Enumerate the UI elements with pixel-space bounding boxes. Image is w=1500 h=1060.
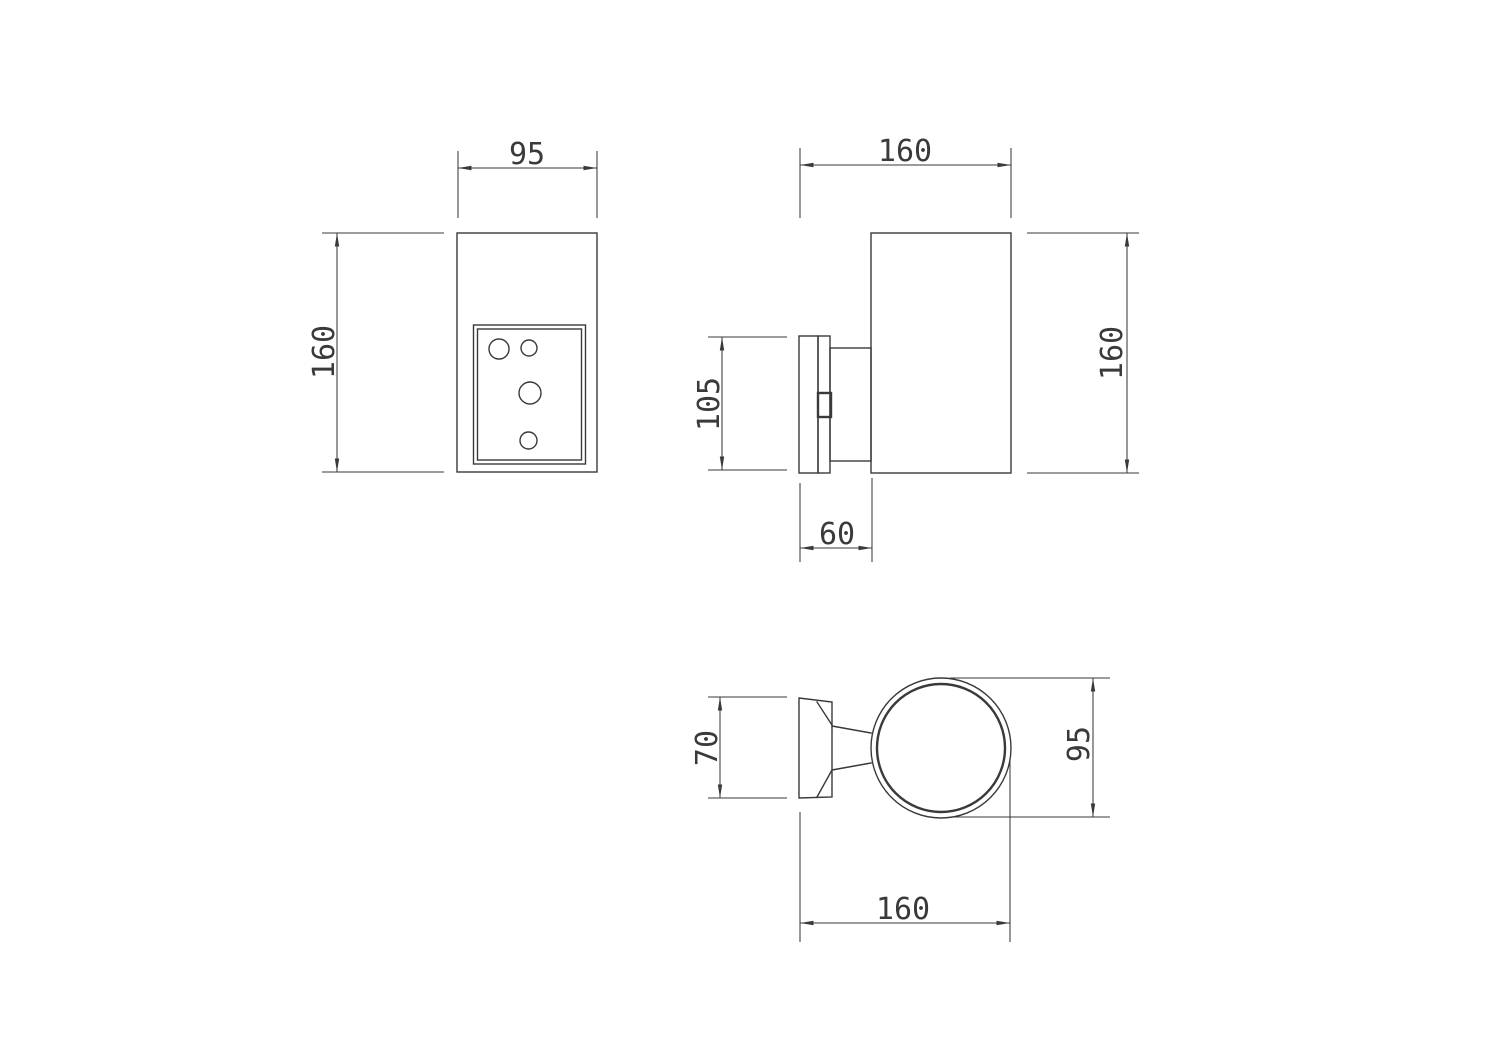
side-backplate: [799, 336, 818, 473]
top-body-inner-ring: [877, 684, 1005, 812]
side-view: 160 160 105 60: [692, 134, 1139, 562]
front-width-dimension: 95: [458, 137, 597, 218]
side-height-dimension: 160: [1027, 233, 1139, 473]
side-screw-detail: [818, 393, 831, 417]
top-diameter-dimension: 95: [950, 678, 1110, 817]
front-plate-inner: [478, 329, 582, 460]
front-plate-hole-small-top: [521, 340, 537, 356]
dim-label-top-backplate-width: 70: [690, 730, 725, 766]
top-arm-edge-bottom: [832, 763, 871, 770]
top-backplate-outline: [799, 698, 832, 798]
side-body-outline: [871, 233, 1011, 473]
dim-label-backplate-height: 105: [692, 377, 727, 431]
side-backplate-height-dimension: 105: [692, 337, 787, 470]
top-backplate-bevel-top: [817, 702, 832, 725]
front-plate-outer: [474, 325, 586, 464]
top-view: 70 95 160: [690, 678, 1110, 942]
top-body-outer-circle: [871, 678, 1011, 818]
front-plate-hole-middle: [519, 382, 541, 404]
front-plate-hole-bottom: [520, 432, 537, 449]
dim-label-mount-depth: 60: [819, 517, 855, 552]
drawing-canvas: 95 160: [0, 0, 1500, 1060]
side-mount-depth-dimension: 60: [800, 478, 872, 562]
dim-label-top-depth: 160: [876, 892, 930, 927]
front-view: 95 160: [307, 137, 597, 472]
dim-label-side-height: 160: [1095, 326, 1130, 380]
technical-drawing: 95 160: [0, 0, 1500, 1060]
dim-label-front-height: 160: [307, 325, 342, 379]
side-mount-bracket: [830, 348, 871, 461]
dim-label-side-width: 160: [878, 134, 932, 169]
side-backplate-spacer: [818, 336, 830, 473]
front-plate-hole-large: [489, 339, 509, 359]
side-width-dimension: 160: [800, 134, 1011, 218]
top-backplate-bevel-bottom: [817, 770, 832, 797]
top-arm-edge-top: [832, 726, 871, 733]
front-height-dimension: 160: [307, 233, 444, 472]
dim-label-front-width: 95: [509, 137, 545, 172]
dim-label-top-diameter: 95: [1062, 726, 1097, 762]
top-backplate-width-dimension: 70: [690, 697, 787, 798]
